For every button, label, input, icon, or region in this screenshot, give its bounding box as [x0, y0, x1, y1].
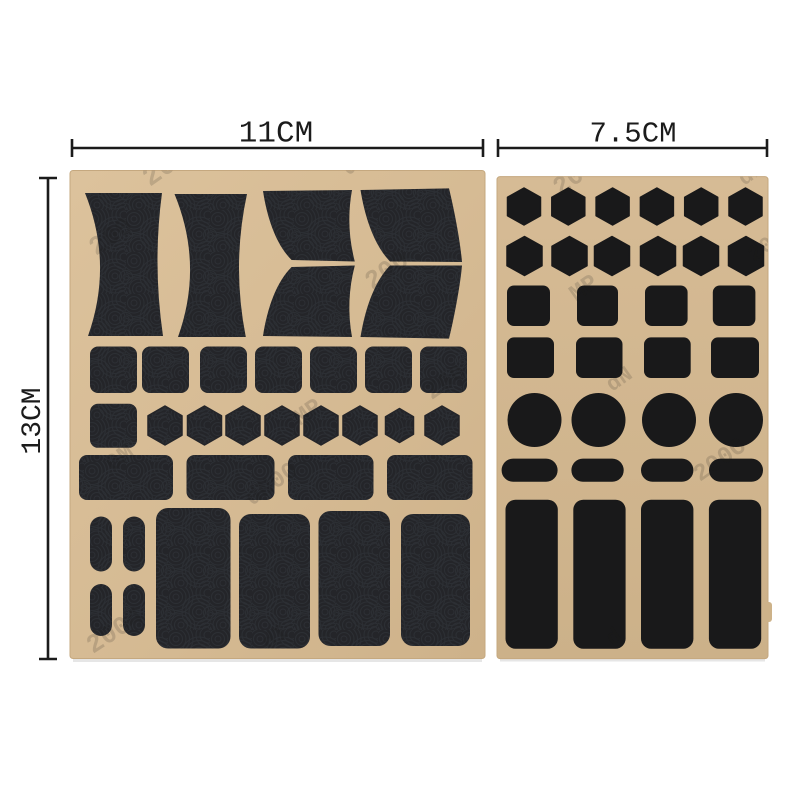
svg-text:11CM: 11CM: [239, 117, 313, 152]
svg-text:7.5CM: 7.5CM: [589, 118, 676, 151]
svg-text:13CM: 13CM: [18, 387, 49, 454]
